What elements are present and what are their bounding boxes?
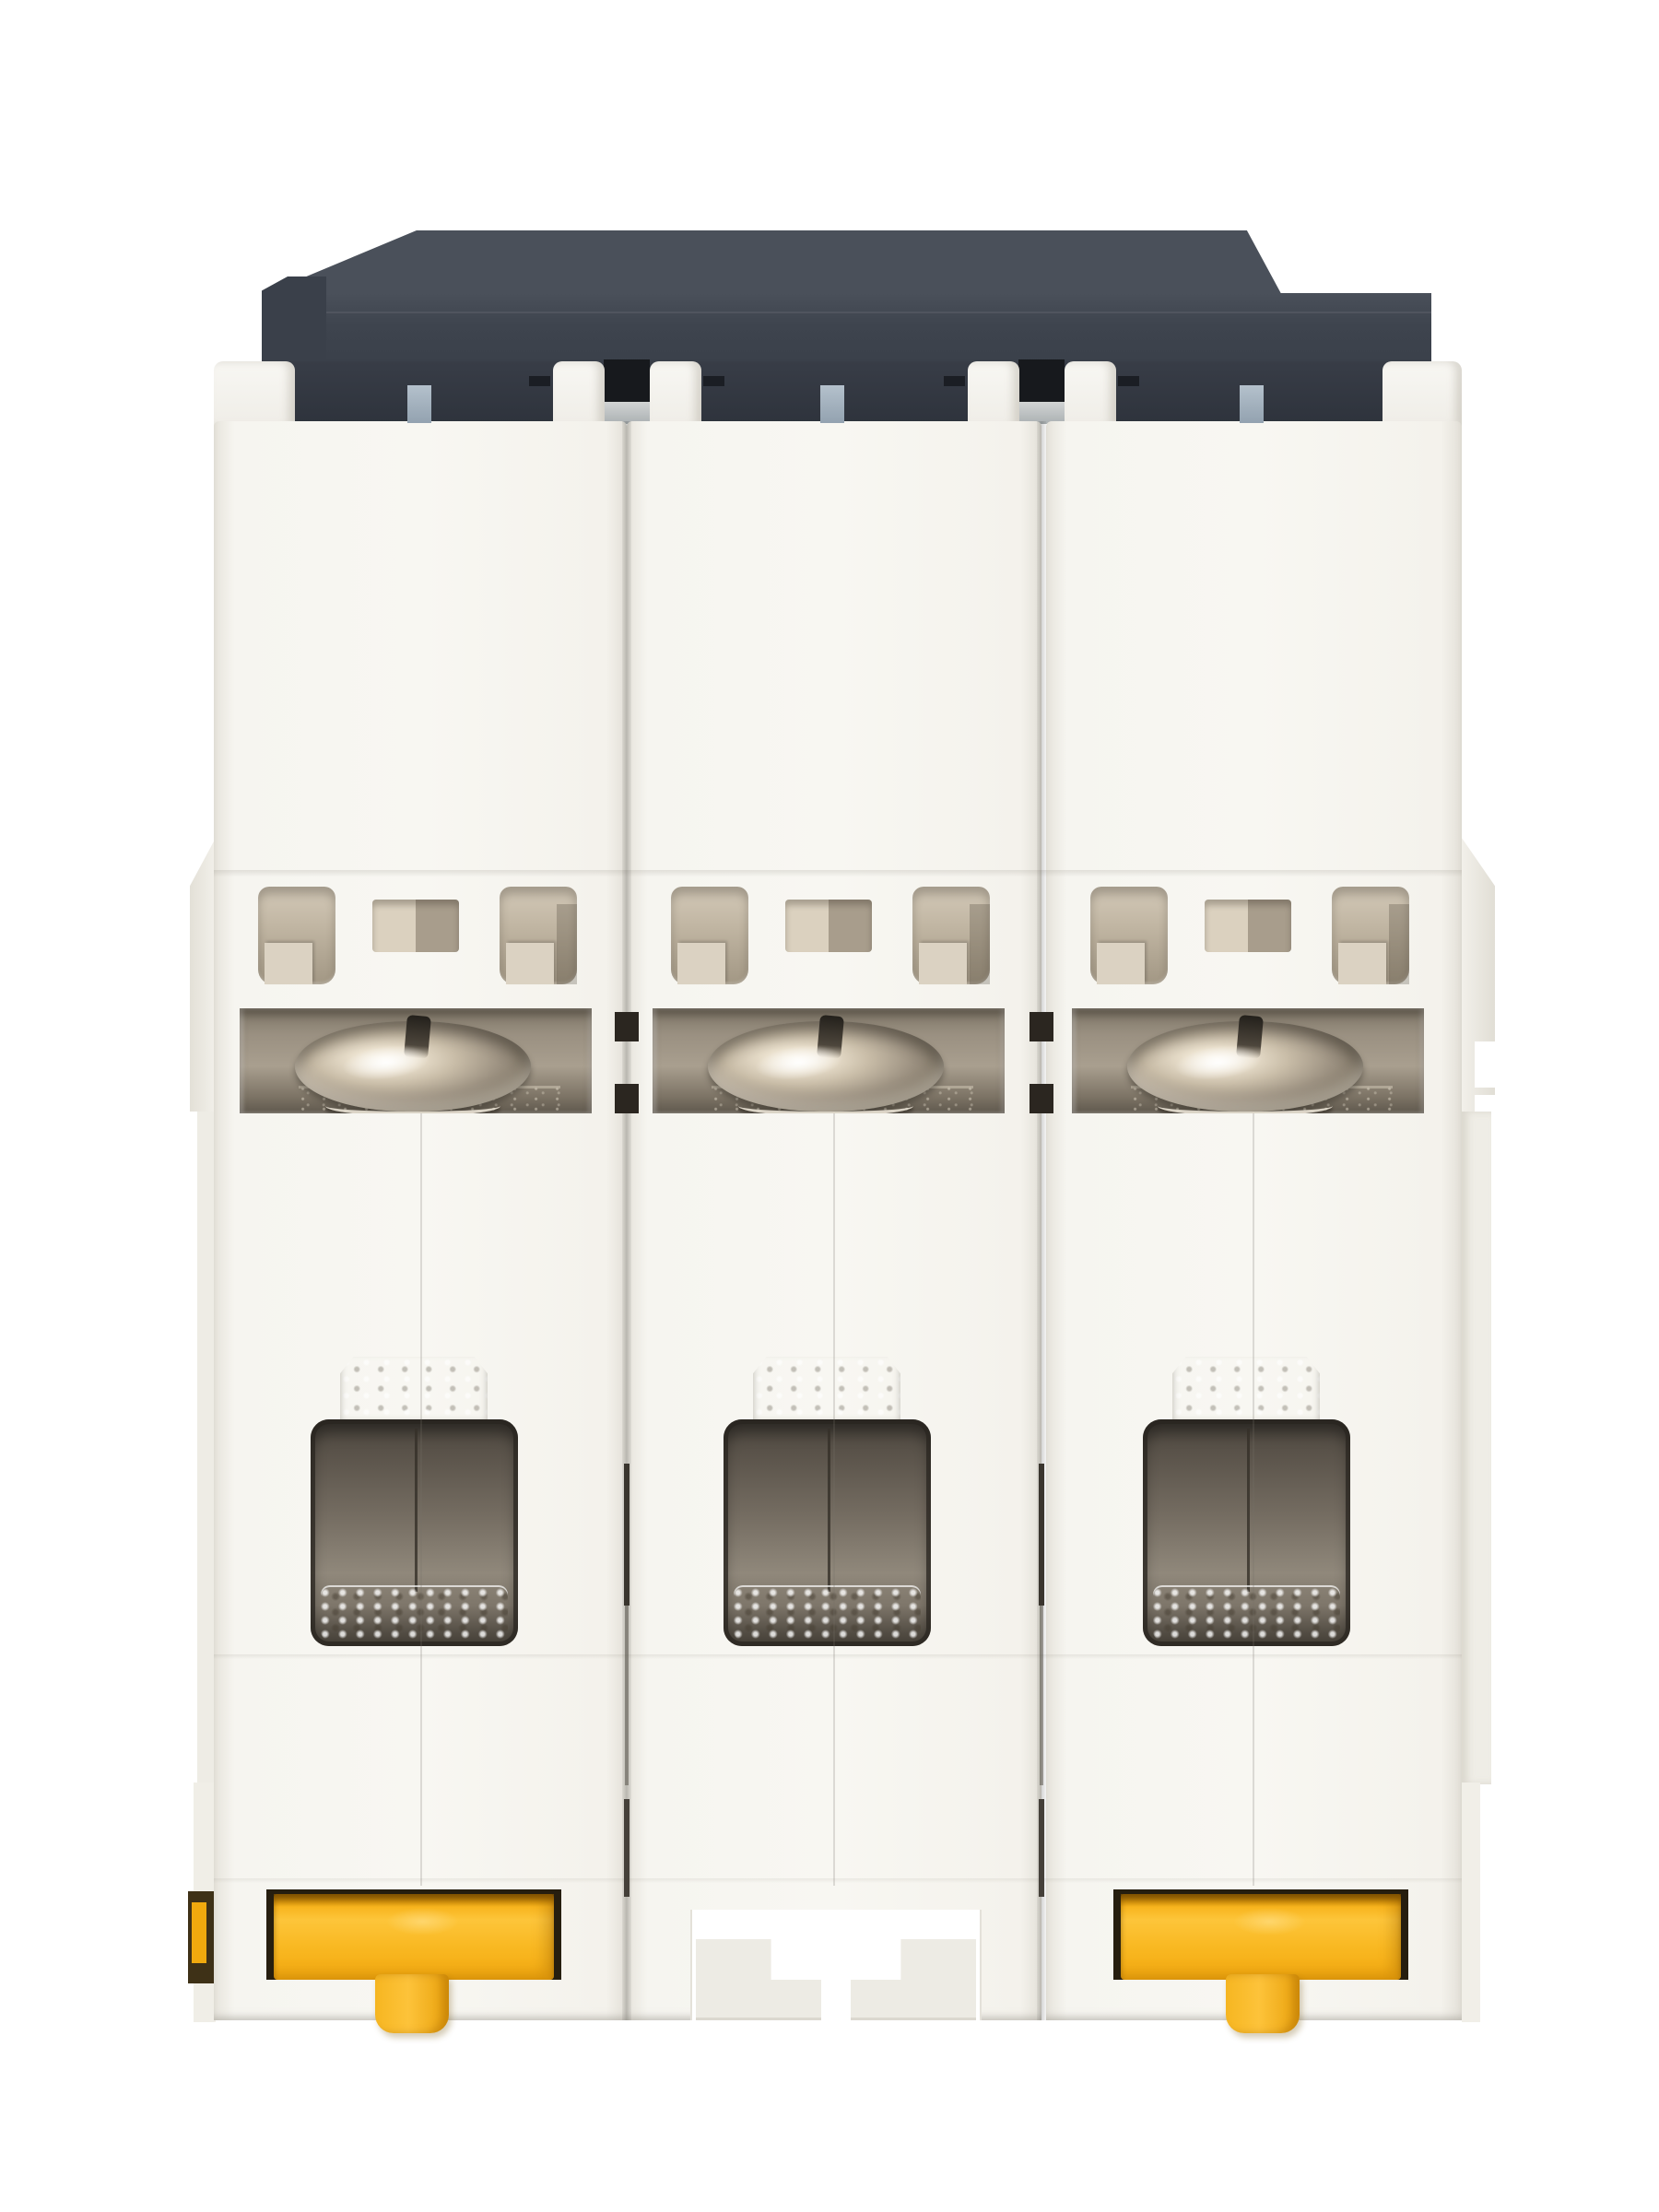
vent-opening-center (1205, 900, 1291, 952)
vent-opening-left (258, 887, 335, 984)
din-rail-slot (690, 1910, 982, 2020)
groove-notch (615, 1084, 639, 1113)
housing-seam (833, 1113, 835, 1886)
groove-notch (615, 1012, 639, 1041)
din-clip-recess (266, 1889, 561, 1980)
din-rail-ledge (696, 1939, 821, 2020)
side-notch (1475, 1095, 1497, 1112)
clip-end-visible (192, 1902, 206, 1963)
housing-seam (420, 1113, 422, 1886)
screw-thread (325, 1096, 500, 1113)
side-wall-left (197, 1112, 216, 1783)
groove-slot (624, 1464, 629, 1606)
terminal-screw (295, 1021, 531, 1112)
vent-opening-left (1090, 887, 1168, 984)
breaker-photo (0, 0, 1659, 2212)
terminal-screw (708, 1021, 944, 1112)
terminal-clamp-tab (340, 1357, 488, 1427)
groove-slot (1039, 1464, 1044, 1606)
din-clip-recess (1113, 1889, 1408, 1980)
vent-opening-right (1332, 887, 1409, 984)
screw-recess (1072, 1008, 1424, 1113)
wire-terminal-opening (1143, 1419, 1350, 1646)
side-notch (1475, 1041, 1497, 1088)
screw-thread (738, 1096, 912, 1113)
housing-seam (1253, 1113, 1254, 1886)
din-rail-clip (1121, 1894, 1401, 1980)
groove-notch (1030, 1012, 1053, 1041)
side-strip-right (1462, 1783, 1480, 2022)
wire-terminal-opening (311, 1419, 518, 1646)
screw-recess (240, 1008, 592, 1113)
terminal-clamp-tab (753, 1357, 900, 1427)
side-wall-right (1462, 1112, 1491, 1784)
screw-recess (653, 1008, 1005, 1113)
housing-seam (214, 1654, 1462, 1661)
vent-opening-center (785, 900, 872, 952)
din-rail-clip (274, 1894, 554, 1980)
groove-slot (625, 1606, 629, 1785)
groove-slot (624, 1799, 629, 1897)
vent-opening-right (500, 887, 577, 984)
terminal-screw (1127, 1021, 1363, 1112)
vent-opening-left (671, 887, 748, 984)
rail-guide-tab (1240, 385, 1264, 423)
vent-opening-right (912, 887, 990, 984)
wire-terminal-opening (724, 1419, 931, 1646)
screw-thread (1158, 1096, 1332, 1113)
rail-guide-tab (407, 385, 431, 423)
clip-channel-opening (188, 1891, 214, 1983)
housing-seam (214, 870, 1462, 879)
rail-guide-tab (820, 385, 844, 423)
groove-slot (1039, 1799, 1044, 1897)
din-rail-ledge (851, 1939, 976, 2020)
groove-notch (1030, 1084, 1053, 1113)
vent-opening-center (372, 900, 459, 952)
din-clip-stem (375, 1974, 449, 2033)
housing-seam (214, 1878, 1462, 1885)
side-ledge-left (190, 829, 216, 1112)
din-clip-stem (1226, 1974, 1300, 2033)
groove-slot (1040, 1606, 1043, 1785)
terminal-clamp-tab (1172, 1357, 1320, 1427)
